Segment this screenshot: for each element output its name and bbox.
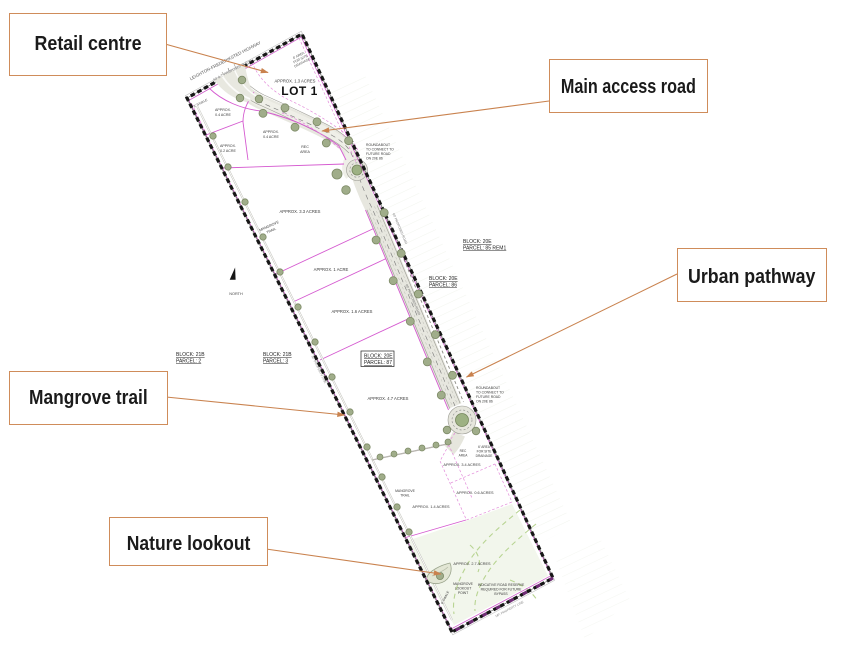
svg-text:AREA: AREA	[459, 454, 469, 458]
svg-text:FUTURE ROAD: FUTURE ROAD	[476, 395, 501, 399]
svg-text:BYPASS: BYPASS	[494, 592, 508, 596]
svg-text:0.4 ACRE: 0.4 ACRE	[263, 135, 279, 139]
svg-text:APPROX. 4.7 ACRES: APPROX. 4.7 ACRES	[368, 396, 409, 401]
svg-text:PARCEL: 85 REM1: PARCEL: 85 REM1	[463, 246, 506, 252]
svg-text:APPROX. 1.4 ACRES: APPROX. 1.4 ACRES	[412, 505, 450, 509]
svg-text:APPROX. 1.3 ACRES: APPROX. 1.3 ACRES	[275, 78, 316, 83]
svg-text:TO CONNECT TO: TO CONNECT TO	[476, 391, 504, 395]
svg-text:APPROX. 2.7 ACRES: APPROX. 2.7 ACRES	[453, 562, 491, 566]
svg-text:INDICATIVE ROAD RESERVE: INDICATIVE ROAD RESERVE	[478, 583, 525, 587]
svg-text:APPROX. 0.6 ACRES: APPROX. 0.6 ACRES	[456, 491, 494, 495]
svg-text:ON 20E 86: ON 20E 86	[366, 157, 383, 161]
svg-text:AREA: AREA	[300, 150, 310, 154]
svg-text:APPROX.: APPROX.	[220, 144, 236, 148]
svg-text:REC: REC	[301, 145, 309, 149]
svg-text:NORTH: NORTH	[229, 292, 243, 296]
svg-text:REQUIRED FOR FUTURE: REQUIRED FOR FUTURE	[481, 588, 522, 592]
svg-text:0.4 ACRE: 0.4 ACRE	[215, 113, 231, 117]
svg-text:TRAIL: TRAIL	[400, 494, 410, 498]
svg-text:FUTURE ROAD: FUTURE ROAD	[366, 152, 391, 156]
svg-text:BLOCK: 21B: BLOCK: 21B	[263, 352, 292, 358]
svg-text:REC: REC	[460, 449, 467, 453]
svg-text:APPROX. 3.4 ACRES: APPROX. 3.4 ACRES	[443, 463, 481, 467]
svg-text:MANGROVE: MANGROVE	[395, 489, 416, 493]
svg-text:DRAINAGE: DRAINAGE	[476, 454, 493, 458]
svg-text:APPROX. 1.6 ACRES: APPROX. 1.6 ACRES	[332, 309, 373, 314]
svg-text:PARCEL: 2: PARCEL: 2	[176, 359, 201, 365]
svg-text:0.2 ACRE: 0.2 ACRE	[220, 149, 236, 153]
svg-text:LOOKOUT: LOOKOUT	[455, 587, 472, 591]
svg-text:BLOCK: 20E: BLOCK: 20E	[429, 276, 458, 282]
svg-text:POINT: POINT	[458, 591, 468, 595]
svg-text:LOT 1: LOT 1	[281, 84, 318, 98]
svg-text:BLOCK: 21B: BLOCK: 21B	[176, 352, 205, 358]
svg-text:PARCEL: 87: PARCEL: 87	[364, 360, 392, 366]
svg-text:6' AREA: 6' AREA	[478, 445, 491, 449]
svg-text:ROUNDABOUT: ROUNDABOUT	[366, 143, 390, 147]
svg-text:BLOCK: 20E: BLOCK: 20E	[463, 239, 492, 245]
svg-text:APPROX. 1 ACRE: APPROX. 1 ACRE	[314, 267, 349, 272]
svg-text:PARCEL: 86: PARCEL: 86	[429, 283, 457, 289]
svg-text:PARCEL: 3: PARCEL: 3	[263, 359, 288, 365]
svg-text:APPROX.: APPROX.	[263, 130, 279, 134]
svg-text:FOR SITE: FOR SITE	[477, 450, 492, 454]
svg-text:MANGROVE: MANGROVE	[453, 582, 474, 586]
svg-text:BLOCK: 20E: BLOCK: 20E	[364, 354, 393, 360]
svg-text:APPROX. 3.3 ACRES: APPROX. 3.3 ACRES	[280, 209, 321, 214]
svg-text:ROUNDABOUT: ROUNDABOUT	[476, 386, 500, 390]
svg-text:ON 20E 86: ON 20E 86	[476, 400, 493, 404]
svg-text:TO CONNECT TO: TO CONNECT TO	[366, 148, 394, 152]
svg-text:APPROX.: APPROX.	[215, 108, 231, 112]
